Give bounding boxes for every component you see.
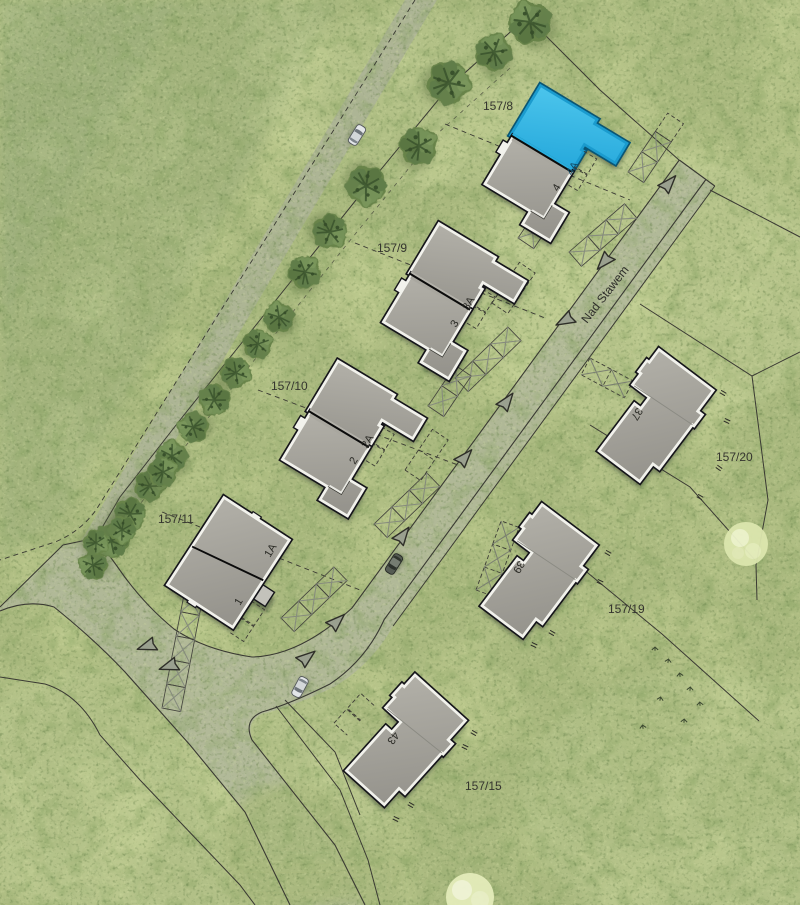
svg-text:157/8: 157/8 <box>483 99 513 113</box>
svg-text:157/19: 157/19 <box>608 602 645 616</box>
svg-text:157/9: 157/9 <box>377 241 407 255</box>
svg-text:157/11: 157/11 <box>158 512 194 526</box>
svg-text:157/20: 157/20 <box>716 450 753 464</box>
svg-text:157/10: 157/10 <box>271 379 308 393</box>
svg-text:157/15: 157/15 <box>465 779 502 793</box>
